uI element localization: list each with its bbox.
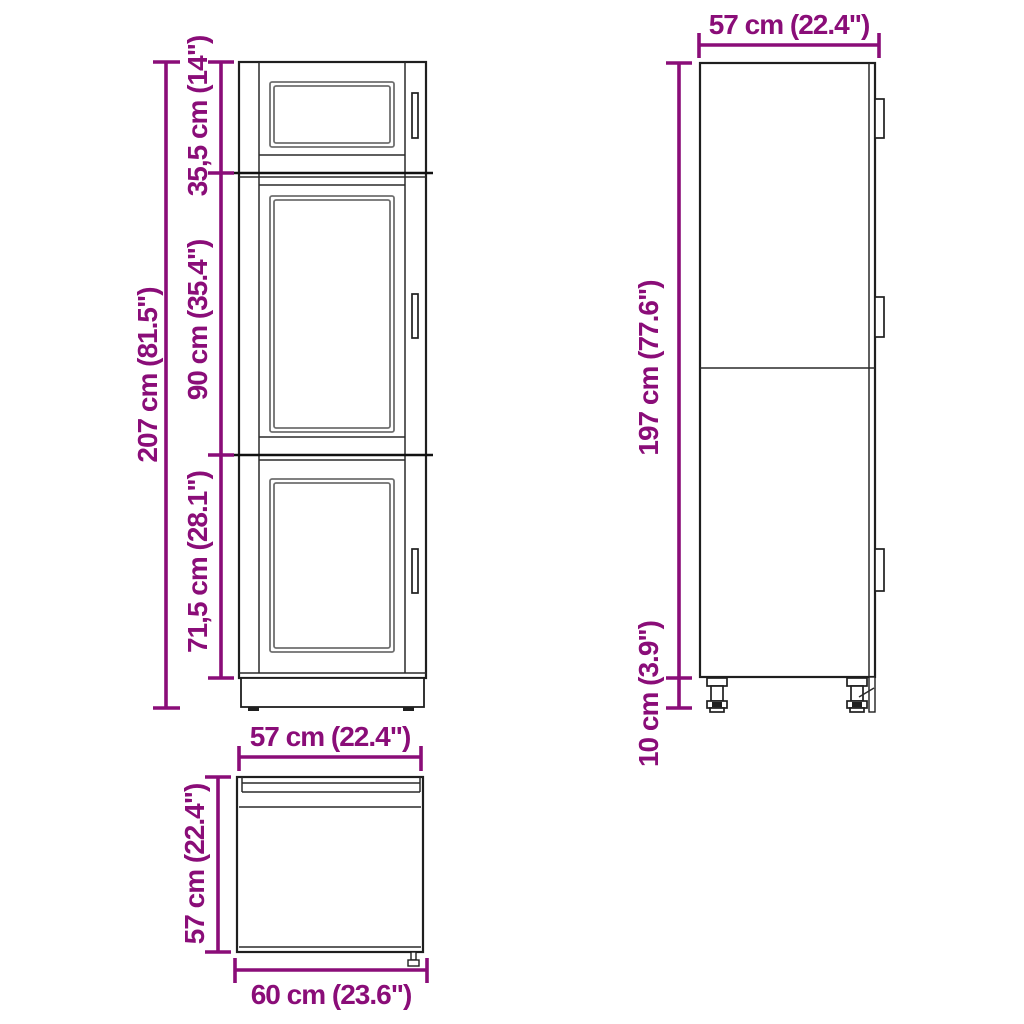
side-cabinet-outline: [700, 63, 875, 677]
hinge-icon-bottom: [875, 549, 884, 591]
foot-base: [408, 960, 419, 966]
front-dim-sections: 35,5 cm (14") 90 cm (35.4") 71,5 cm (28.…: [182, 36, 234, 678]
middle-door-handle-icon: [412, 294, 418, 338]
foot-flange: [847, 678, 867, 686]
side-dim-heights: 197 cm (77.6") 10 cm (3.9"): [633, 63, 692, 767]
dim-label-side-depth: 57 cm (22.4"): [709, 9, 870, 40]
front-plinth: [241, 678, 424, 707]
side-dim-depth: 57 cm (22.4"): [699, 9, 879, 58]
foot-nut-core: [852, 702, 862, 707]
drawing-svg: 207 cm (81.5") 35,5 cm (14") 90 cm (35.4…: [0, 0, 1024, 1024]
plan-dim-depth: 57 cm (22.4"): [179, 777, 231, 952]
top-view: 57 cm (22.4") 57 cm (22.4") 60 cm (23.6"…: [179, 721, 427, 1010]
front-view: 207 cm (81.5") 35,5 cm (14") 90 cm (35.4…: [132, 36, 433, 711]
foot-stem: [411, 952, 416, 960]
foot-flange: [707, 678, 727, 686]
dim-label-top-section: 35,5 cm (14"): [182, 36, 213, 197]
plan-outline: [237, 777, 423, 952]
hinge-icon-top: [875, 99, 884, 138]
foot-base: [850, 708, 864, 712]
front-dim-total-height: 207 cm (81.5"): [132, 62, 180, 708]
front-foot-right-tip: [403, 707, 414, 711]
front-foot-left-tip: [248, 707, 259, 711]
foot-stem: [711, 686, 723, 701]
side-plinth-strip: [869, 677, 875, 712]
dim-label-feet-height: 10 cm (3.9"): [633, 621, 664, 767]
side-view: 57 cm (22.4") 197 cm (77.6") 10 cm (3.9"…: [633, 9, 884, 767]
dim-label-bottom-section: 71,5 cm (28.1"): [182, 471, 213, 653]
top-door-handle-icon: [412, 93, 418, 138]
dimension-drawing: 207 cm (81.5") 35,5 cm (14") 90 cm (35.4…: [0, 0, 1024, 1024]
dim-label-middle-section: 90 cm (35.4"): [182, 240, 213, 401]
dim-label-plan-depth: 57 cm (22.4"): [179, 784, 210, 945]
plan-rear-foot: [408, 952, 419, 966]
bottom-door-handle-icon: [412, 549, 418, 593]
plan-dim-overall-width: 60 cm (23.6"): [235, 958, 427, 1010]
foot-stem: [851, 686, 863, 701]
plan-dim-inner-width: 57 cm (22.4"): [239, 721, 421, 771]
foot-base: [710, 708, 724, 712]
hinge-icon-middle: [875, 297, 884, 337]
dim-label-plan-inner-width: 57 cm (22.4"): [250, 721, 411, 752]
dim-label-total-height: 207 cm (81.5"): [132, 287, 163, 462]
side-foot-front: [707, 678, 727, 712]
foot-nut-core: [712, 702, 722, 707]
dim-label-plan-overall-width: 60 cm (23.6"): [251, 979, 412, 1010]
dim-label-carcass-height: 197 cm (77.6"): [633, 280, 664, 455]
